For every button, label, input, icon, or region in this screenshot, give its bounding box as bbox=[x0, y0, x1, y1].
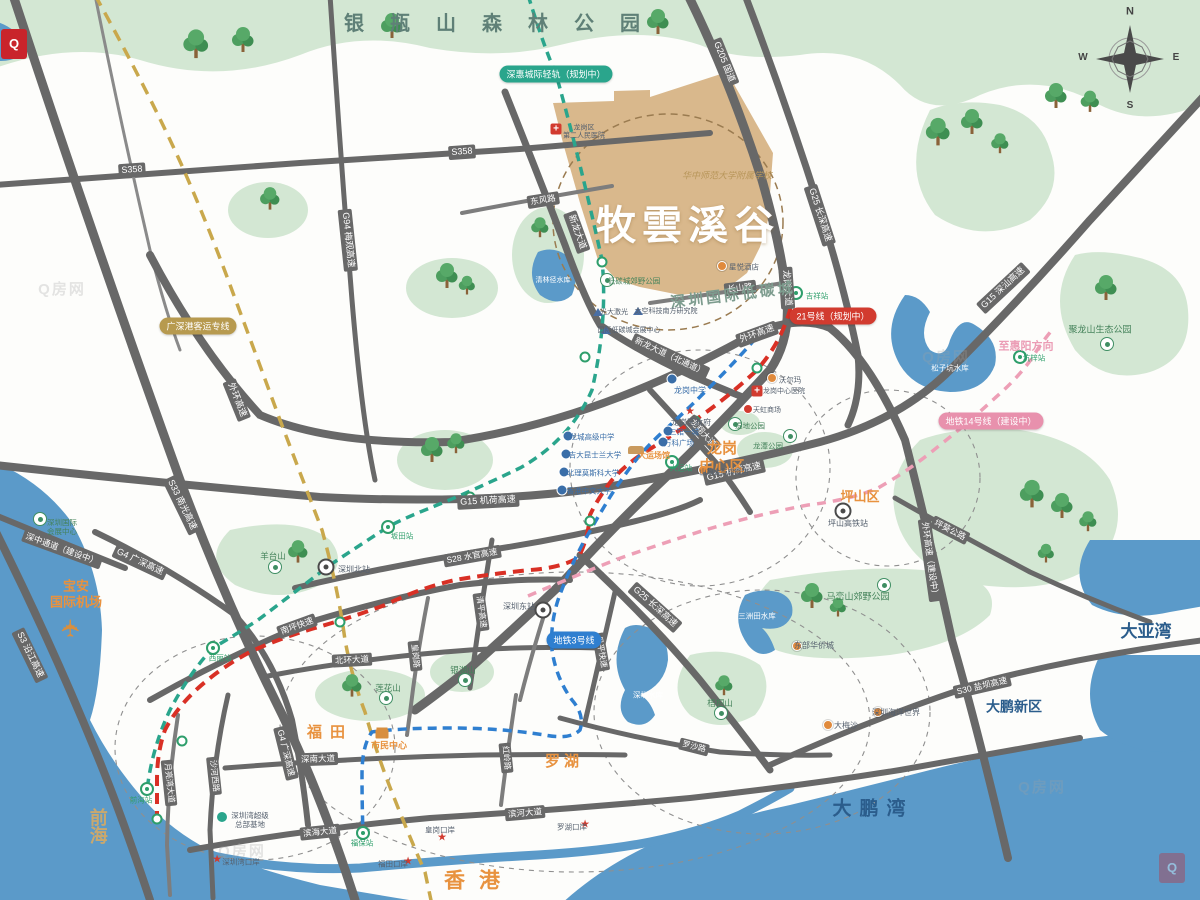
map-graphics bbox=[0, 0, 1200, 900]
project-logo: 牧雲溪谷 bbox=[596, 193, 780, 251]
badge-metro-line14: 地铁14号线（建设中） bbox=[938, 413, 1043, 430]
badge-gsg-rail: 广深港客运专线 bbox=[159, 318, 236, 335]
badge-metro-line3: 地铁3号线 bbox=[546, 632, 601, 649]
badge-shenhui-light-rail: 深惠城际轻轨（规划中） bbox=[499, 66, 612, 83]
map-canvas: 牧雲溪谷 S33 南光高速S3 沿江高速S358S358G94 梅观高速G205… bbox=[0, 0, 1200, 900]
badge-line21: 21号线（规划中） bbox=[789, 308, 876, 325]
